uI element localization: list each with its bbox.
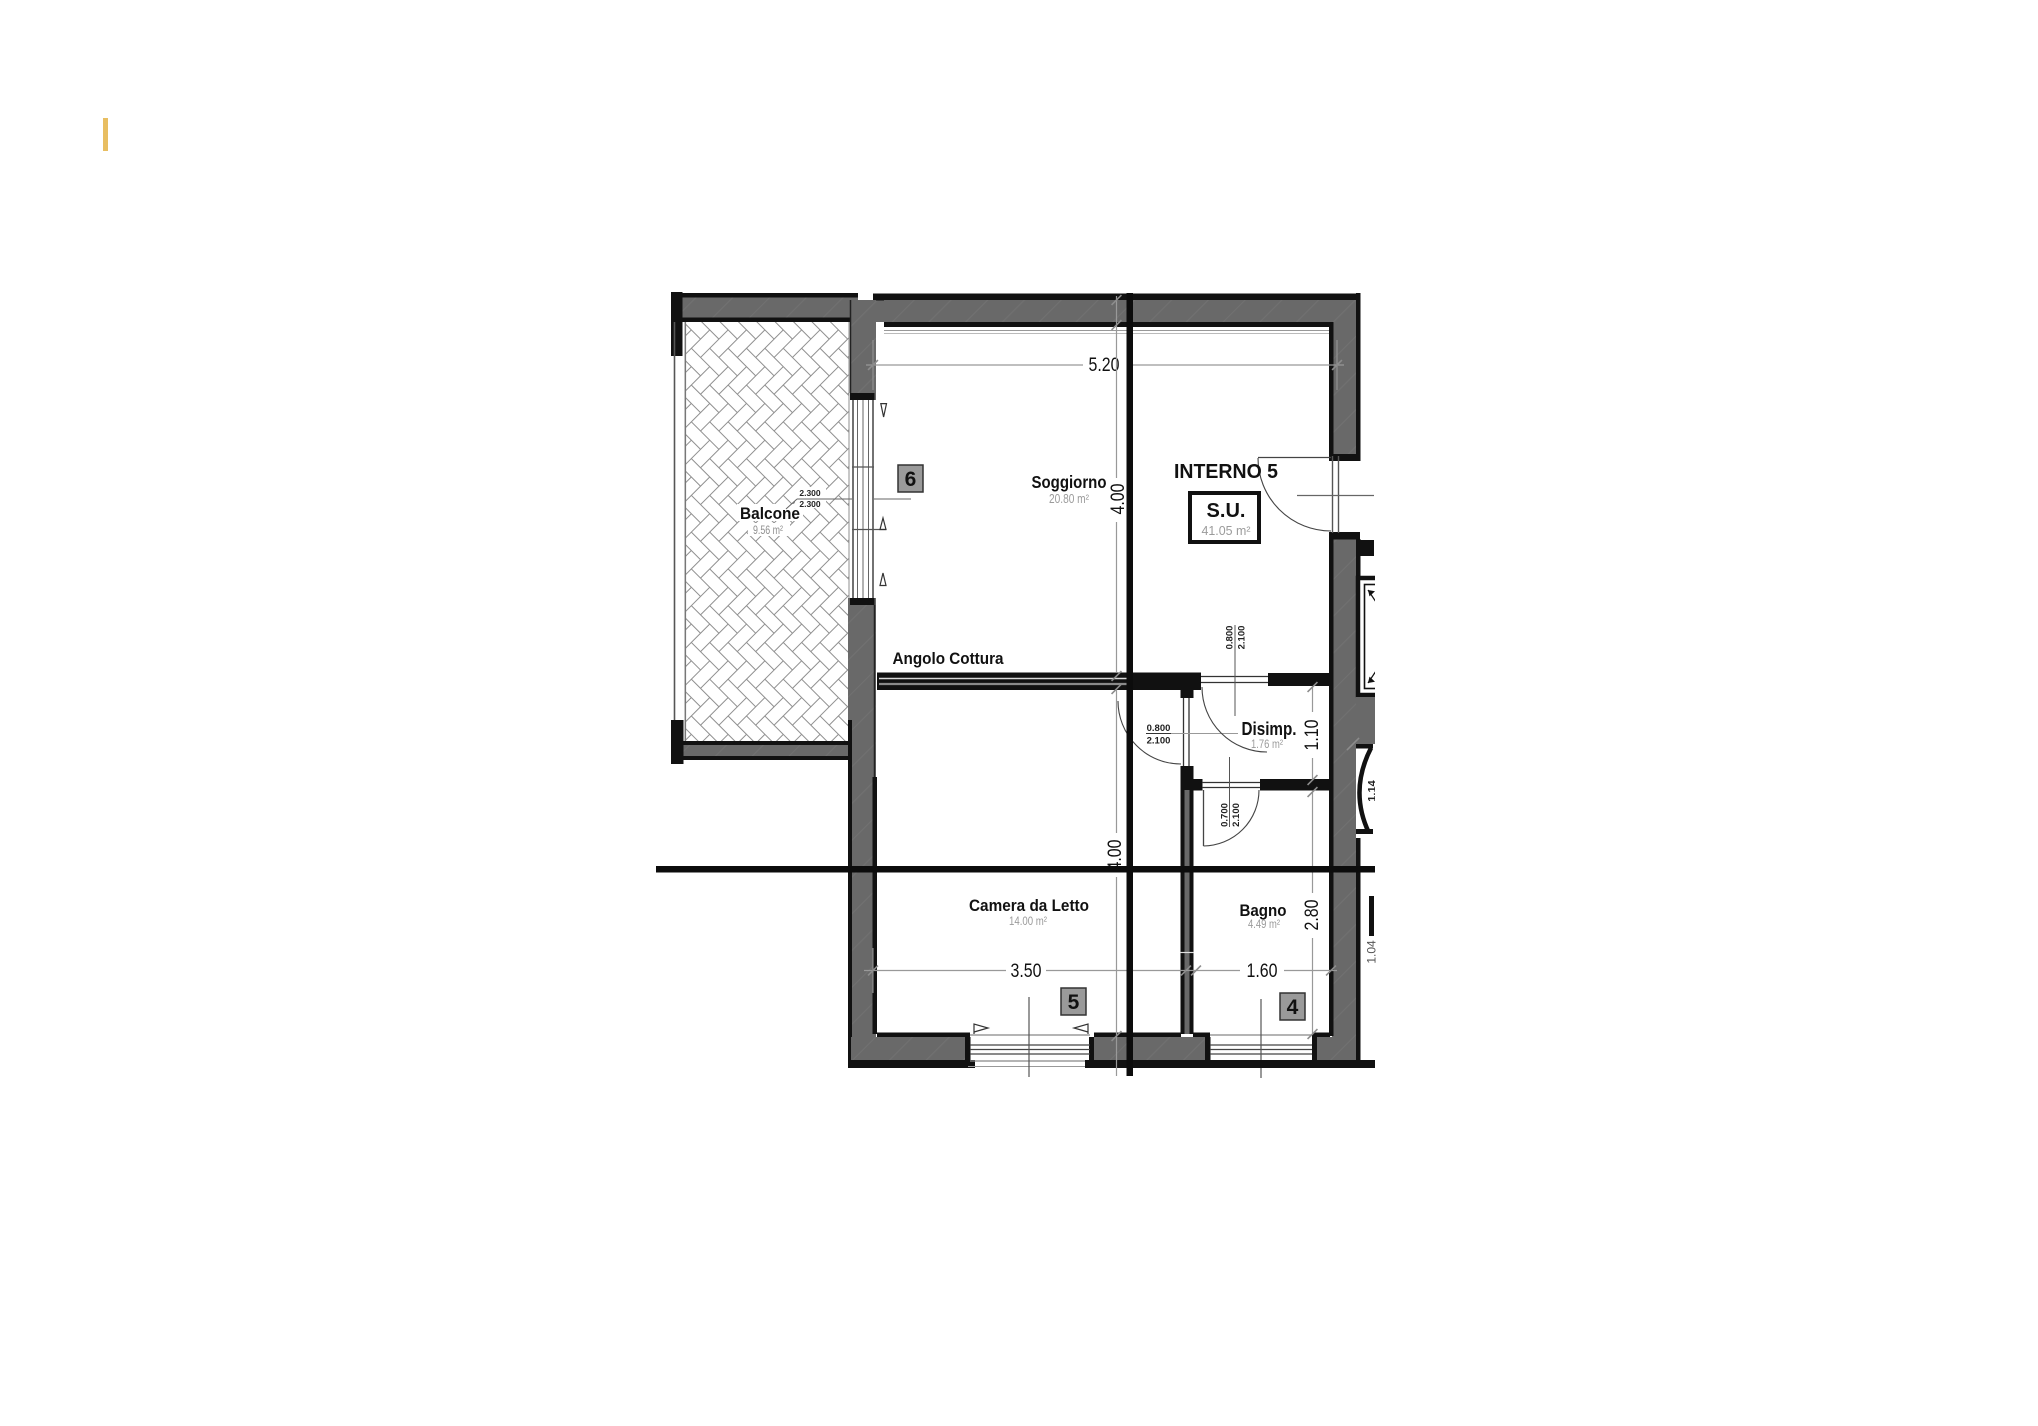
svg-text:1.76 m²: 1.76 m²: [1251, 737, 1283, 751]
svg-text:0.800: 0.800: [1225, 626, 1236, 650]
svg-text:Balcone: Balcone: [740, 504, 800, 523]
svg-text:INTERNO 5: INTERNO 5: [1174, 461, 1278, 483]
svg-text:41.05 m²: 41.05 m²: [1202, 523, 1252, 538]
svg-text:0.800: 0.800: [1147, 723, 1171, 734]
svg-text:4.00: 4.00: [1105, 840, 1126, 871]
svg-text:1.14: 1.14: [1367, 779, 1379, 801]
svg-text:2.300: 2.300: [799, 499, 821, 509]
svg-text:1.04: 1.04: [1365, 940, 1379, 964]
svg-text:3.50: 3.50: [1011, 961, 1042, 982]
svg-text:5: 5: [1068, 991, 1080, 1014]
svg-text:1.10: 1.10: [1302, 720, 1323, 751]
svg-text:Angolo Cottura: Angolo Cottura: [893, 649, 1004, 668]
svg-text:Soggiorno: Soggiorno: [1032, 472, 1107, 492]
svg-text:9.56 m²: 9.56 m²: [753, 523, 783, 537]
svg-text:6: 6: [905, 468, 917, 491]
svg-text:2.100: 2.100: [1231, 803, 1242, 827]
svg-text:S.U.: S.U.: [1207, 500, 1246, 522]
svg-text:20.80 m²: 20.80 m²: [1049, 492, 1089, 506]
svg-text:4.00: 4.00: [1108, 484, 1129, 515]
svg-text:Disimp.: Disimp.: [1242, 719, 1297, 739]
svg-text:0.700: 0.700: [1220, 803, 1231, 827]
svg-text:14.00 m²: 14.00 m²: [1009, 914, 1047, 928]
svg-text:2.100: 2.100: [1147, 736, 1171, 747]
svg-text:2.300: 2.300: [799, 488, 821, 498]
svg-text:Camera da Letto: Camera da Letto: [969, 896, 1089, 915]
svg-text:5.20: 5.20: [1089, 355, 1120, 376]
svg-text:2.80: 2.80: [1302, 900, 1323, 931]
svg-text:4: 4: [1287, 996, 1299, 1019]
svg-text:1.60: 1.60: [1247, 961, 1278, 982]
svg-text:4.49 m²: 4.49 m²: [1248, 917, 1280, 931]
svg-text:2.100: 2.100: [1237, 626, 1248, 650]
